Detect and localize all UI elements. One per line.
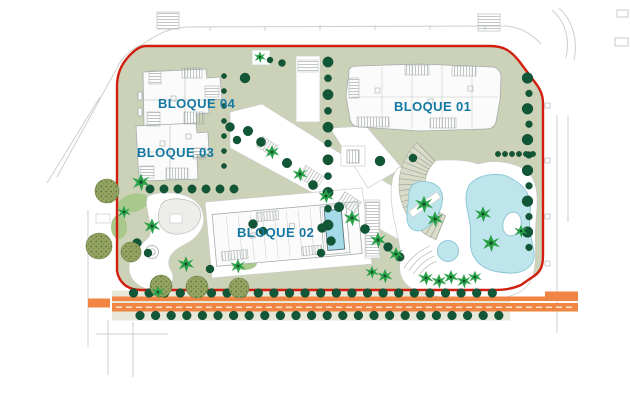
label-bloque-03: BLOQUE 03 xyxy=(137,145,214,160)
olive-tree xyxy=(86,233,112,259)
site-plan-page: BLOQUE 04 BLOQUE 03 BLOQUE 01 BLOQUE 02 xyxy=(0,0,630,401)
round-pool xyxy=(438,241,459,262)
label-bloque-02: BLOQUE 02 xyxy=(237,225,314,240)
olive-tree xyxy=(95,179,119,203)
olive-tree xyxy=(121,242,141,262)
site-plan-drawing: BLOQUE 04 BLOQUE 03 BLOQUE 01 BLOQUE 02 xyxy=(0,0,630,401)
label-bloque-04: BLOQUE 04 xyxy=(158,96,236,111)
building-bloque-01 xyxy=(346,64,501,131)
olive-tree xyxy=(229,278,249,298)
lagoon-pool xyxy=(466,174,534,273)
label-bloque-01: BLOQUE 01 xyxy=(394,99,471,114)
olive-tree xyxy=(186,276,208,298)
